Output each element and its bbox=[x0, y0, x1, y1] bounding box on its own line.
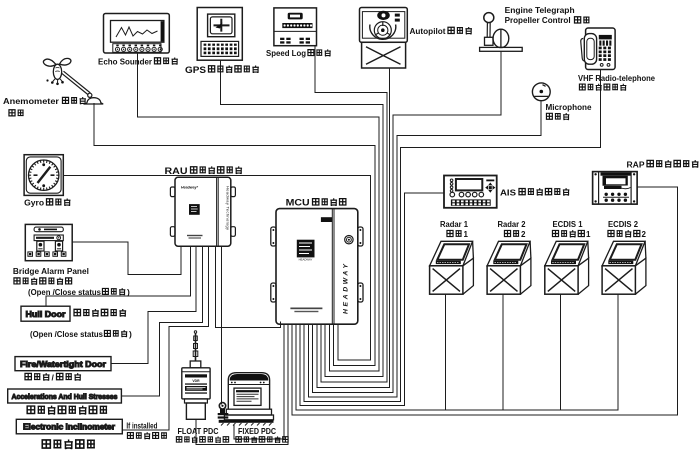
svg-text:Bridge Alarm Panel: Bridge Alarm Panel bbox=[13, 266, 89, 276]
svg-text:): ) bbox=[129, 329, 132, 339]
svg-text:Propeller Control: Propeller Control bbox=[505, 15, 571, 25]
svg-text:If installed: If installed bbox=[126, 422, 157, 431]
svg-text:ECDIS 2: ECDIS 2 bbox=[608, 219, 638, 229]
svg-text:RAU: RAU bbox=[165, 166, 188, 176]
svg-text:Speed Log: Speed Log bbox=[266, 48, 306, 58]
svg-text:MCU: MCU bbox=[286, 198, 310, 208]
svg-text:Fire/Watertight Door: Fire/Watertight Door bbox=[20, 359, 107, 369]
svg-text:FIXED PDC: FIXED PDC bbox=[238, 426, 276, 436]
svg-text:ECDIS 1: ECDIS 1 bbox=[553, 219, 583, 229]
svg-text:RAP: RAP bbox=[627, 159, 645, 169]
svg-text:1: 1 bbox=[586, 230, 591, 239]
svg-text:Radar 2: Radar 2 bbox=[498, 219, 526, 229]
svg-text:Headway*: Headway* bbox=[181, 186, 199, 190]
svg-text:Anemometer: Anemometer bbox=[3, 96, 60, 106]
svg-text:VDR: VDR bbox=[192, 379, 200, 383]
svg-text:Microphone: Microphone bbox=[546, 102, 592, 112]
svg-text:1: 1 bbox=[464, 230, 469, 239]
svg-text:GPS: GPS bbox=[185, 65, 206, 75]
svg-text:HEADWAY: HEADWAY bbox=[299, 258, 313, 262]
svg-text:Echo Sounder: Echo Sounder bbox=[98, 56, 153, 66]
svg-text:VHF Radio-telephone: VHF Radio-telephone bbox=[578, 73, 655, 83]
svg-text:(Open /Close status: (Open /Close status bbox=[28, 287, 101, 297]
svg-text:AIS: AIS bbox=[500, 187, 516, 197]
svg-text:Gyro: Gyro bbox=[24, 197, 44, 207]
svg-text:): ) bbox=[127, 287, 130, 297]
svg-text:Electronic Inclinometer: Electronic Inclinometer bbox=[23, 423, 115, 432]
svg-text:(Open /Close status: (Open /Close status bbox=[30, 329, 103, 339]
svg-text:Hull Door: Hull Door bbox=[26, 309, 67, 319]
svg-text:Headway Technology: Headway Technology bbox=[226, 186, 231, 230]
svg-text:Radar 1: Radar 1 bbox=[440, 219, 468, 229]
svg-text:FLOAT PDC: FLOAT PDC bbox=[178, 426, 219, 436]
svg-text:2: 2 bbox=[521, 230, 526, 239]
svg-text:2: 2 bbox=[642, 230, 647, 239]
svg-text:Autopilot: Autopilot bbox=[410, 26, 446, 36]
svg-text:Accelerations And Hull Stresse: Accelerations And Hull Stresses bbox=[12, 392, 118, 401]
svg-text:Engine Telegraph: Engine Telegraph bbox=[505, 5, 575, 15]
